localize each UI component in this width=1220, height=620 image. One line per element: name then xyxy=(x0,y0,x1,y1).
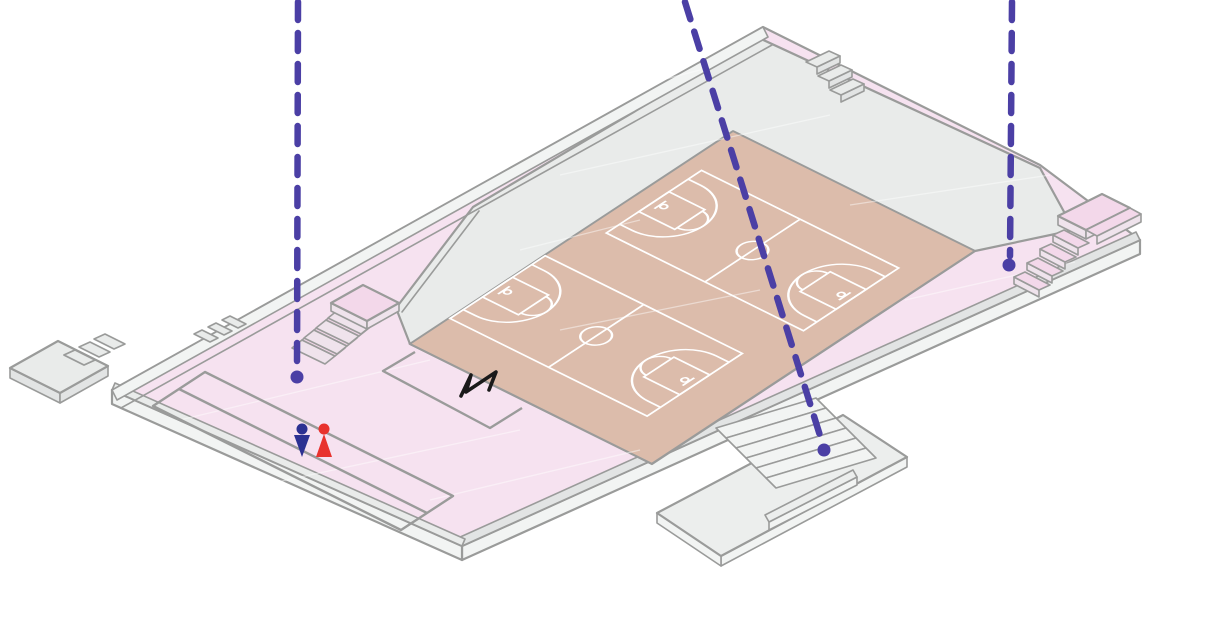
diagram-canvas xyxy=(0,0,1220,620)
isometric-plaza-diagram xyxy=(0,0,1220,620)
dropline-right-dot xyxy=(1003,259,1016,272)
dropline-middle-dot xyxy=(818,444,831,457)
dropline-left xyxy=(297,2,298,368)
far-left-landing xyxy=(10,334,125,403)
dropline-left-dot xyxy=(291,371,304,384)
dropline-right xyxy=(1010,2,1012,256)
